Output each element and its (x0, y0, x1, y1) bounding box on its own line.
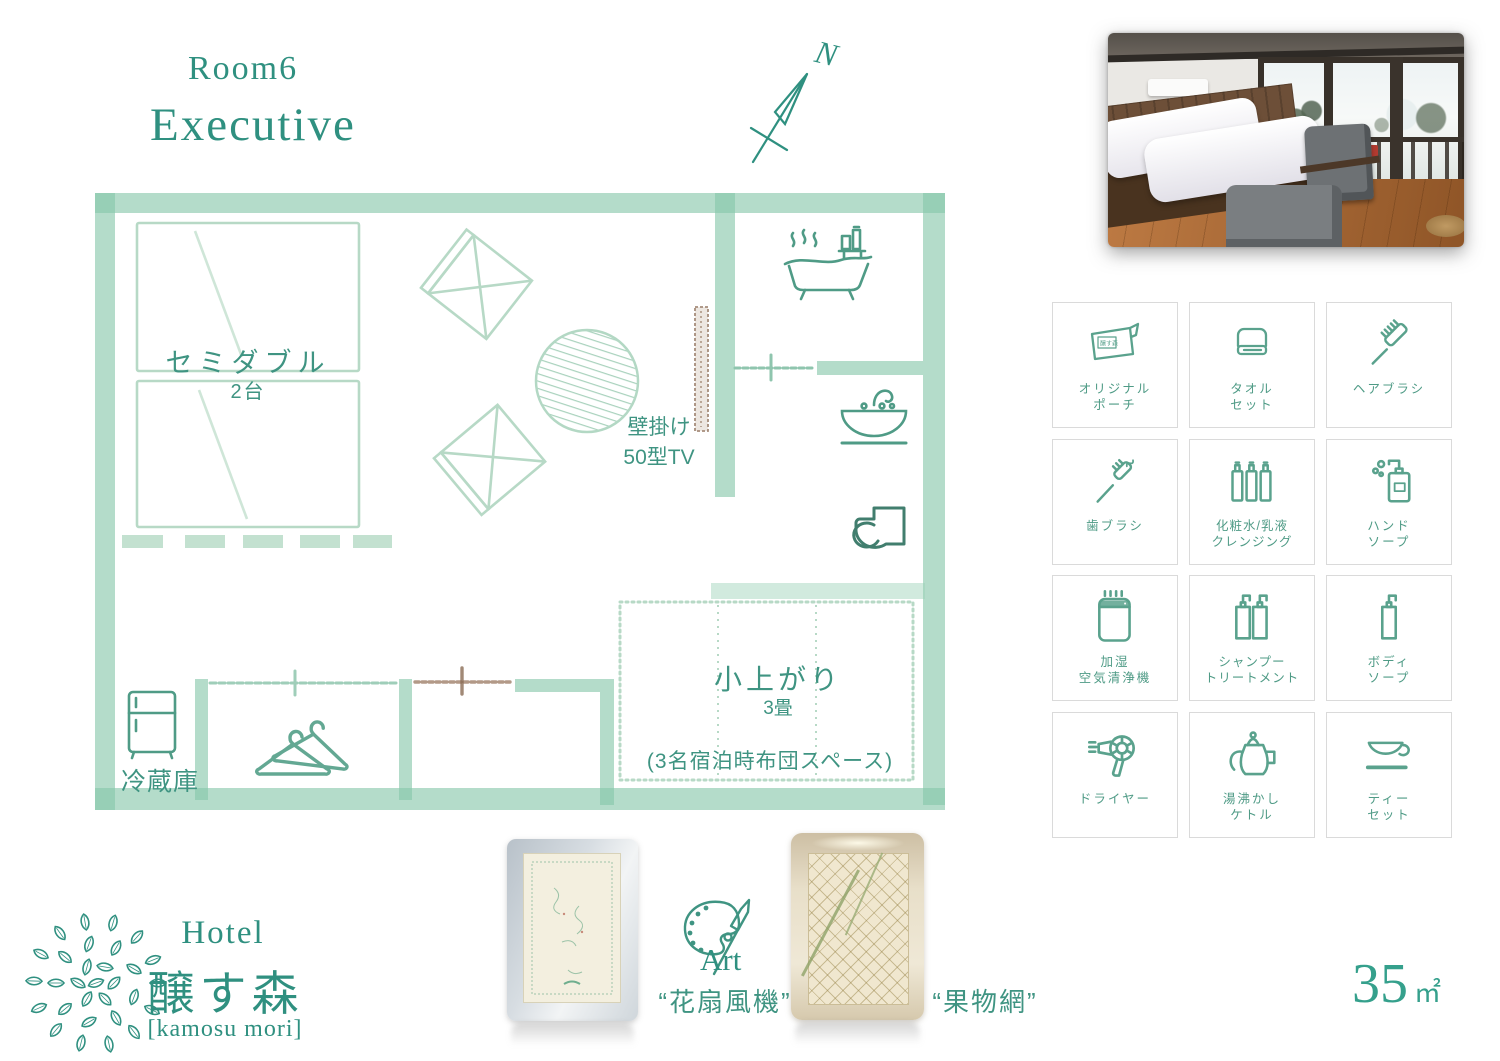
amenity-body-soap: ボディ ソープ (1326, 575, 1452, 701)
amenity-label: 歯ブラシ (1086, 518, 1144, 534)
floor-plan: セミダブル 2台 壁掛け 50型TV 小上がり 3畳 (3名宿泊時布団スペース)… (95, 185, 945, 810)
area-unit: ㎡ (1414, 978, 1441, 1008)
art-right-lamp-glow (811, 835, 905, 851)
art-left-frame (523, 853, 621, 1003)
amenity-label: 化粧水/乳液 (1211, 518, 1292, 534)
art-section-label: Art (700, 942, 741, 978)
photo-air-conditioner (1148, 79, 1208, 96)
room-number: Room6 (188, 50, 298, 88)
amenity-label: ティー (1367, 791, 1411, 807)
amenity-hairbrush: ヘアブラシ (1326, 302, 1452, 428)
amenity-label: ヘアブラシ (1353, 381, 1425, 397)
hair-dryer-icon (1087, 717, 1143, 791)
amenity-label2: ソープ (1368, 670, 1411, 686)
amenity-original-pouch: 醸す森 オリジナル ポーチ (1052, 302, 1178, 428)
art-photo-right (791, 833, 924, 1020)
amenity-label: シャンプー (1205, 654, 1300, 670)
chair-sketch-1 (421, 230, 532, 339)
bathtub-icon (785, 227, 871, 299)
art-right-reflection (795, 1022, 920, 1052)
art-left-sketch (524, 854, 620, 1002)
hotel-name-jp: 醸す森 (128, 955, 323, 1024)
amenity-label2: 空気清浄機 (1079, 670, 1152, 686)
art-title-left: “花扇風機” (655, 982, 795, 1019)
pouch-badge-text: 醸す森 (1100, 340, 1118, 348)
photo-side-table (1426, 215, 1464, 237)
toothbrush-icon (1089, 444, 1141, 518)
art-photo-left (507, 839, 638, 1021)
amenity-label2: ケトル (1223, 807, 1281, 823)
tea-cup-icon (1360, 717, 1418, 791)
amenity-label: 湯沸かし (1223, 791, 1281, 807)
hand-soap-icon (1362, 444, 1416, 518)
bed-count-label: 2台 (135, 375, 361, 404)
amenity-label2: ポーチ (1079, 397, 1152, 413)
amenity-label: ボディ (1368, 654, 1411, 670)
room-photo (1108, 33, 1464, 247)
amenity-towel-set: タオル セット (1189, 302, 1315, 428)
kettle-icon (1223, 717, 1281, 791)
fridge-icon (129, 692, 175, 758)
north-label: N (811, 33, 843, 74)
amenity-label2: セット (1367, 807, 1411, 823)
hotel-name-en: Hotel (148, 915, 298, 952)
amenity-shampoo-treatment: シャンプー トリートメント (1189, 575, 1315, 701)
toilet-icon (854, 508, 904, 547)
amenity-label2: トリートメント (1205, 670, 1300, 686)
room-area: 35㎡ (1352, 952, 1441, 1016)
tv-label-line2: 50型TV (607, 443, 711, 473)
fridge-label: 冷蔵庫 (105, 762, 215, 798)
art-left-reflection (511, 1023, 634, 1053)
amenity-label: オリジナル (1079, 381, 1152, 397)
amenity-label2: セット (1230, 397, 1274, 413)
amenity-kettle: 湯沸かし ケトル (1189, 712, 1315, 838)
tatami-size-label: 3畳 (678, 693, 878, 720)
tv-label: 壁掛け 50型TV (607, 413, 711, 473)
amenity-label2: クレンジング (1211, 534, 1292, 550)
north-compass-icon: N (735, 28, 855, 178)
amenity-hair-dryer: ドライヤー (1052, 712, 1178, 838)
tatami-label: 小上がり (678, 658, 878, 698)
hanger-icon (257, 717, 352, 774)
sink-icon (842, 391, 906, 443)
towel-icon (1226, 307, 1278, 381)
cosmetic-bottles-icon (1225, 444, 1279, 518)
tv-label-line1: 壁掛け (607, 413, 711, 443)
window-dashes (122, 535, 392, 548)
amenity-label: タオル (1230, 381, 1274, 397)
door-sketches (210, 355, 813, 695)
shampoo-bottles-icon (1225, 580, 1279, 654)
amenity-tea-set: ティー セット (1326, 712, 1452, 838)
air-purifier-icon (1088, 580, 1142, 654)
amenity-hand-soap: ハンド ソープ (1326, 439, 1452, 565)
chair-sketch-2 (434, 405, 545, 515)
room-type-title: Executive (150, 98, 356, 152)
amenity-label2: ソープ (1367, 534, 1411, 550)
photo-armchair-2 (1226, 185, 1342, 247)
art-right-frame (808, 853, 909, 1005)
amenity-label: ハンド (1367, 518, 1411, 534)
amenity-air-purifier: 加湿 空気清浄機 (1052, 575, 1178, 701)
area-value: 35 (1352, 953, 1408, 1015)
amenity-label: ドライヤー (1079, 791, 1151, 807)
pouch-icon: 醸す森 (1084, 307, 1146, 381)
amenity-toothbrush: 歯ブラシ (1052, 439, 1178, 565)
body-soap-icon (1362, 580, 1416, 654)
amenity-lotion-cleansing: 化粧水/乳液 クレンジング (1189, 439, 1315, 565)
room-info-sheet: { "header": { "room_number": "Room6", "r… (0, 0, 1500, 1060)
hotel-name-romaji: [kamosu mori] (120, 1016, 330, 1043)
amenity-label: 加湿 (1079, 654, 1152, 670)
tatami-note-label: (3名宿泊時布団スペース) (615, 745, 925, 775)
hairbrush-icon (1363, 307, 1415, 381)
art-title-right: “果物網” (930, 982, 1040, 1019)
